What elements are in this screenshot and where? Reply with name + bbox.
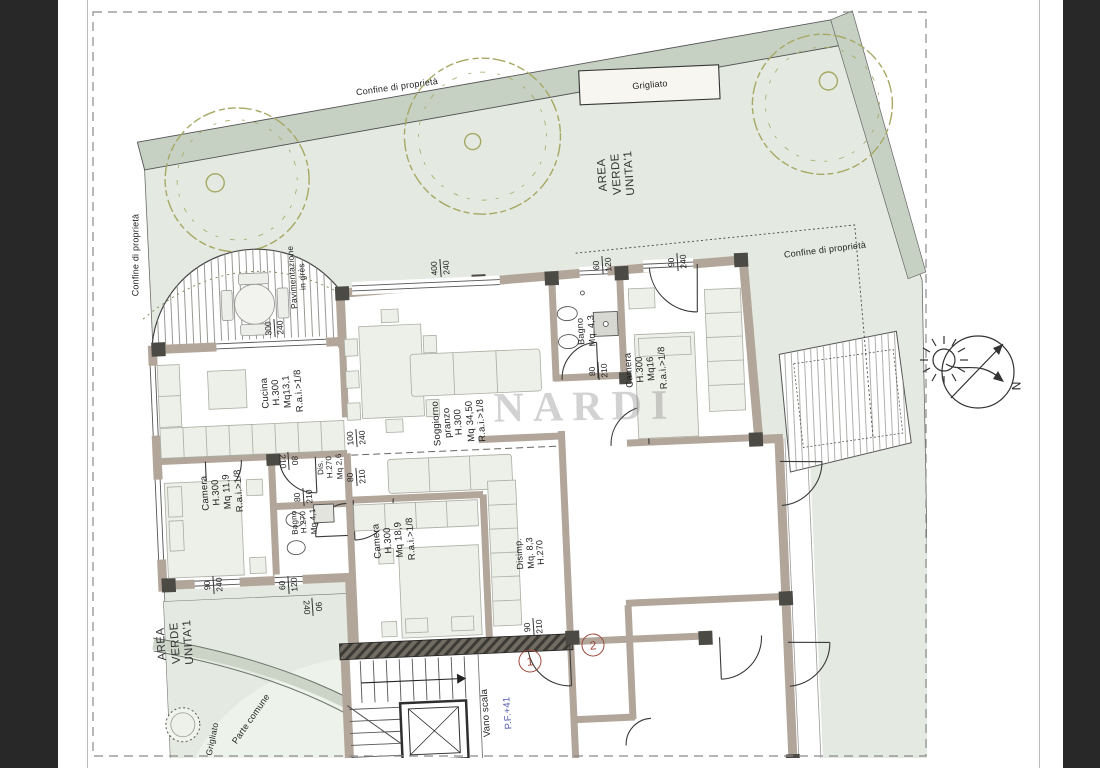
dim-label: 90240	[201, 575, 224, 595]
dim-label: 100240	[344, 428, 367, 448]
dim-label: 400240	[428, 258, 451, 278]
watermark: NARDI	[455, 381, 716, 434]
dim-label: 90210	[521, 617, 544, 637]
right-dark-edge	[1063, 0, 1100, 768]
elevator	[400, 700, 468, 761]
dim-label: 80210	[291, 487, 314, 507]
dim-label: 300240	[262, 318, 285, 338]
dim-label: 80210	[277, 451, 300, 471]
grigliato-box	[579, 65, 720, 105]
dim-label: 60120	[276, 575, 299, 595]
left-dark-edge	[0, 0, 58, 768]
dim-label: 90240	[665, 252, 688, 272]
page-seam-right	[1039, 0, 1040, 768]
dim-label: 60120	[590, 255, 613, 275]
dim-label: 80210	[344, 467, 367, 487]
page-seam-left	[87, 0, 88, 768]
dim-label: 90240	[301, 597, 324, 617]
dim-label: 80210	[586, 361, 609, 381]
floor-plan-page: NARDI Confine di proprietà Confine di pr…	[0, 0, 1100, 768]
